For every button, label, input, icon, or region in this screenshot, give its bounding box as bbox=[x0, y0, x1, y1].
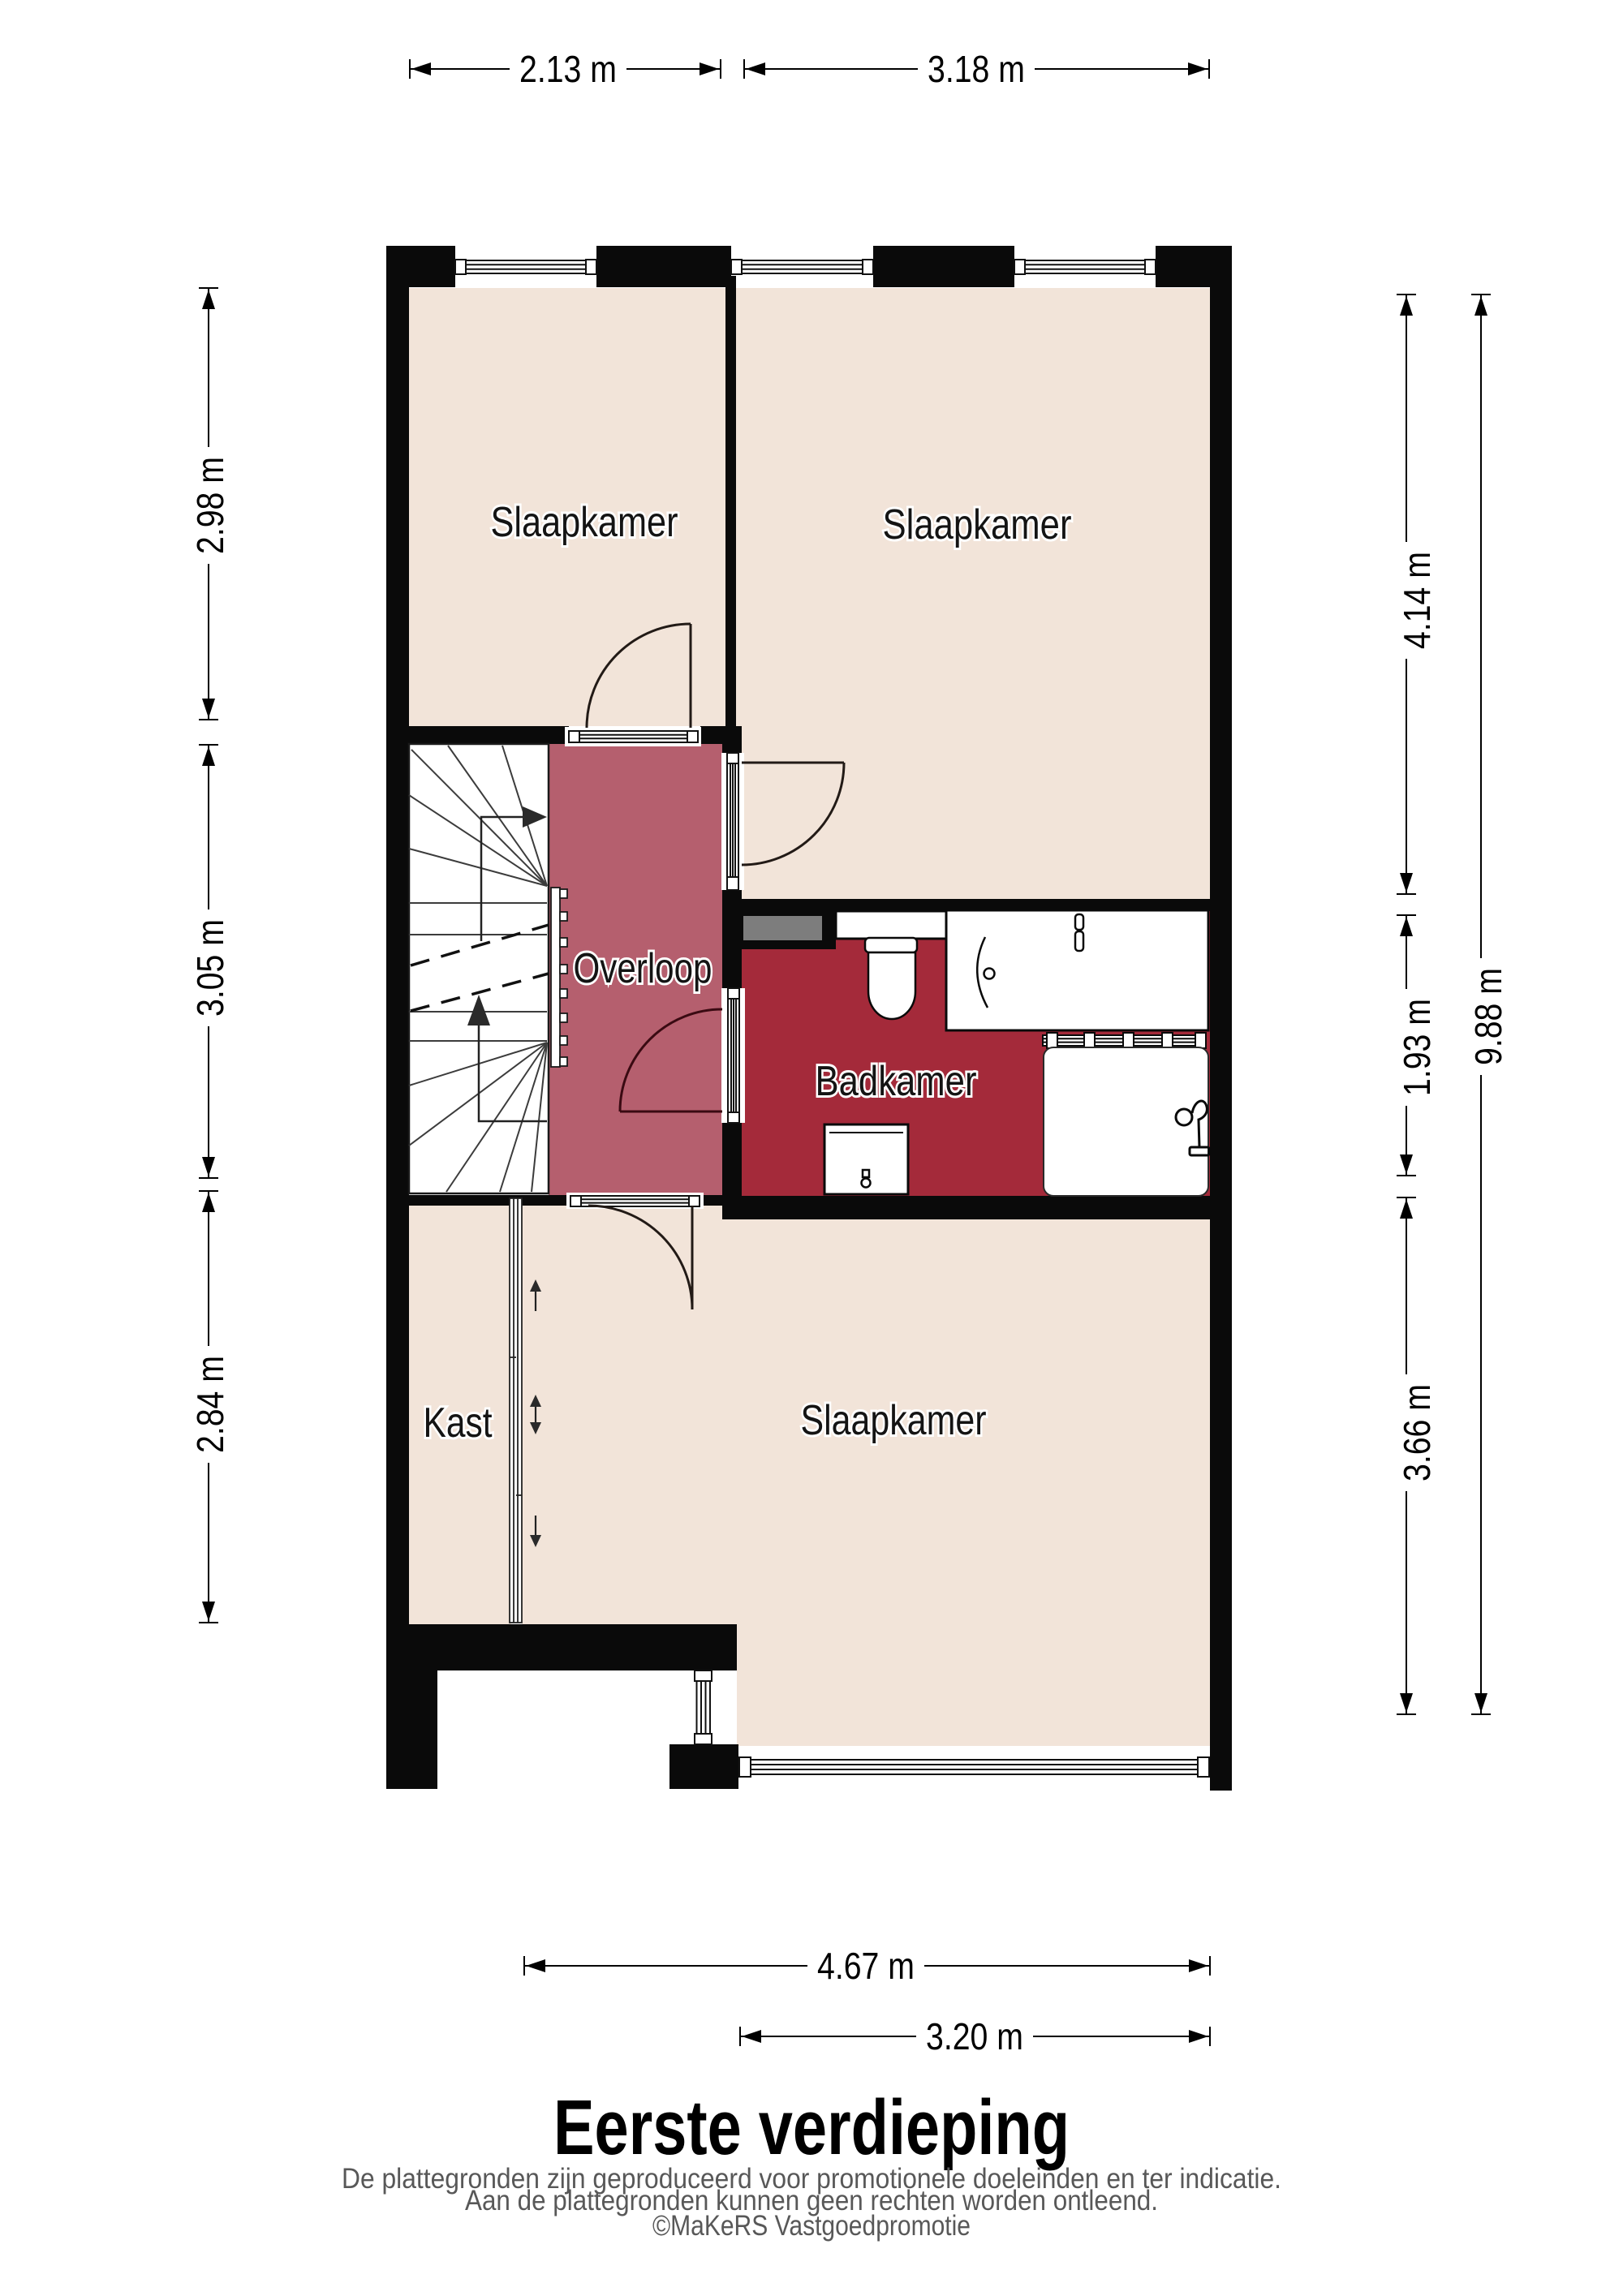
svg-text:3.18 m: 3.18 m bbox=[928, 48, 1025, 90]
svg-text:Slaapkamer: Slaapkamer bbox=[883, 501, 1072, 548]
svg-text:Kast: Kast bbox=[424, 1400, 493, 1447]
svg-text:Slaapkamer: Slaapkamer bbox=[801, 1397, 987, 1444]
svg-text:9.88 m: 9.88 m bbox=[1467, 968, 1509, 1065]
svg-text:Overloop: Overloop bbox=[574, 945, 712, 992]
svg-text:3.05 m: 3.05 m bbox=[189, 919, 231, 1017]
svg-text:Slaapkamer: Slaapkamer bbox=[491, 499, 678, 546]
svg-text:2.13 m: 2.13 m bbox=[519, 48, 617, 90]
svg-text:4.14 m: 4.14 m bbox=[1396, 552, 1438, 649]
svg-text:2.98 m: 2.98 m bbox=[189, 457, 231, 554]
svg-text:2.84 m: 2.84 m bbox=[189, 1356, 231, 1453]
svg-text:4.67 m: 4.67 m bbox=[817, 1945, 915, 1987]
svg-text:3.66 m: 3.66 m bbox=[1396, 1384, 1438, 1481]
svg-text:1.93 m: 1.93 m bbox=[1396, 999, 1438, 1096]
svg-text:3.20 m: 3.20 m bbox=[926, 2015, 1023, 2057]
svg-text:Eerste verdieping: Eerste verdieping bbox=[553, 2084, 1070, 2171]
svg-text:Badkamer: Badkamer bbox=[816, 1058, 977, 1105]
svg-text:©MaKeRS Vastgoedpromotie: ©MaKeRS Vastgoedpromotie bbox=[652, 2210, 971, 2242]
